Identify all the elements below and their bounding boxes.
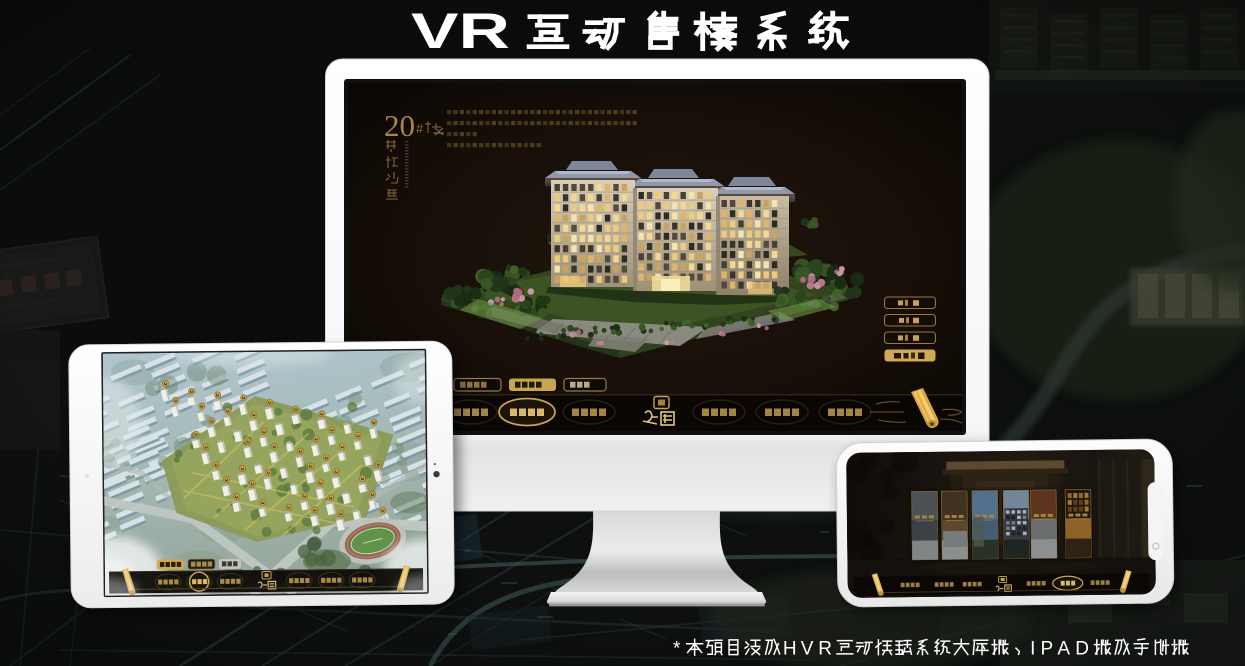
svg-text:*: * — [673, 639, 681, 660]
svg-text:D: D — [1075, 639, 1089, 660]
svg-text:P: P — [1041, 639, 1054, 660]
svg-text:A: A — [1057, 639, 1070, 660]
svg-text:R: R — [818, 639, 832, 660]
svg-text:V: V — [801, 639, 814, 660]
svg-text:H: H — [783, 639, 797, 660]
svg-text:I: I — [1030, 639, 1035, 660]
